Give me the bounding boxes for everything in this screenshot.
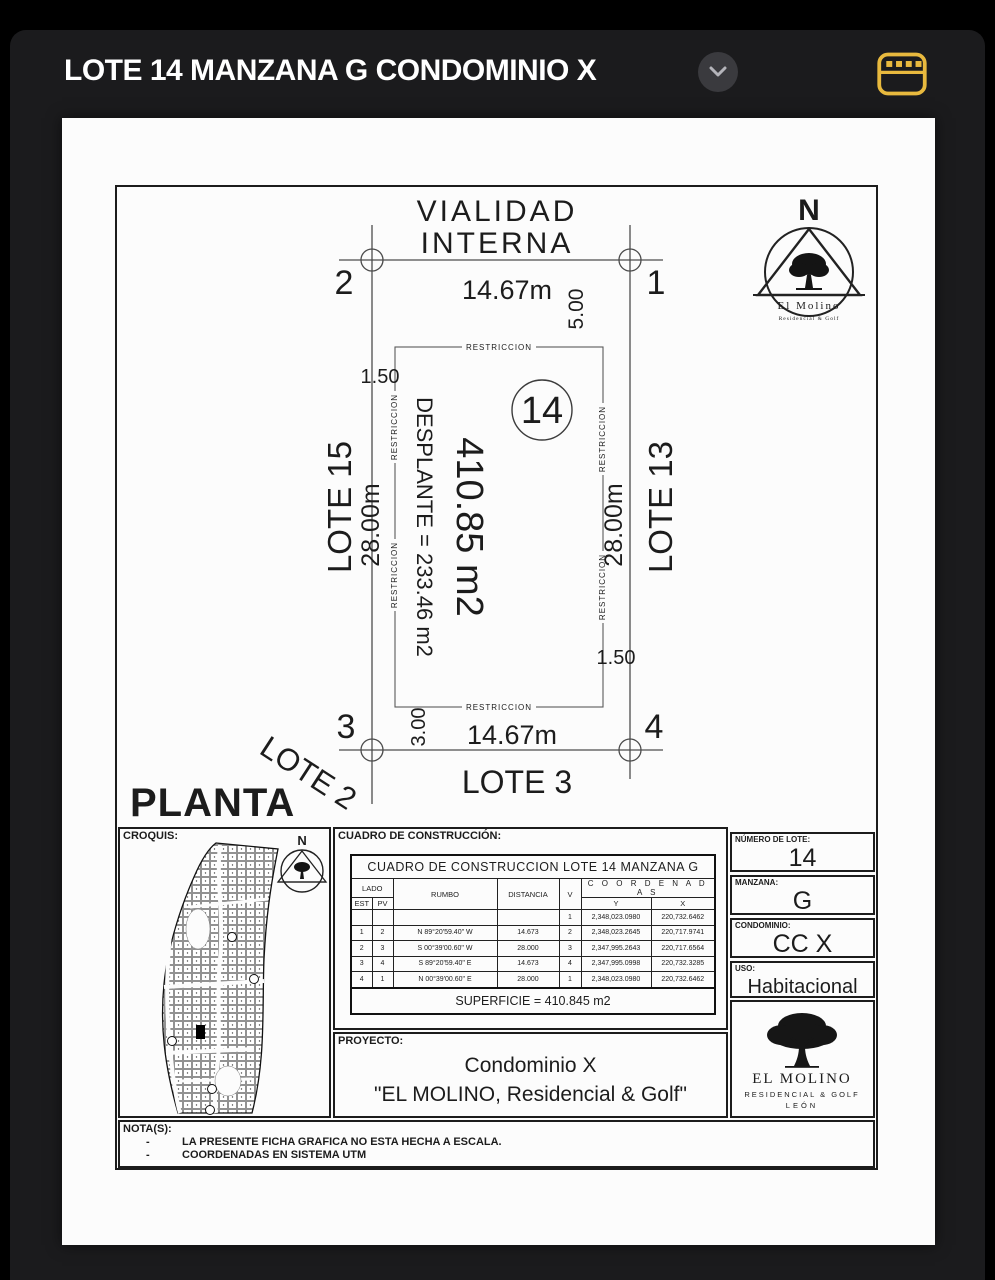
north-arrow-logo: N El Molino Residencial & Golf <box>753 194 865 322</box>
cell-x: 220,717.6564 <box>651 941 715 957</box>
table-row: 4 1 N 00°39'00.60" E 28.000 1 2,348,023.… <box>351 972 715 988</box>
cell-rumbo: S 00°39'00.60" W <box>393 941 497 957</box>
street-label-line2: INTERNA <box>421 227 574 260</box>
left-setback: 1.50 <box>361 366 400 388</box>
note-item: -COORDENADAS EN SISTEMA UTM <box>146 1149 873 1161</box>
proyecto-line2: "EL MOLINO, Residencial & Golf" <box>335 1080 726 1109</box>
cell-est: 1 <box>351 925 372 941</box>
cell-y: 2,348,023.2645 <box>581 925 651 941</box>
header-distancia: DISTANCIA <box>497 879 559 910</box>
uso-value: Habitacional <box>732 976 873 999</box>
cell-dist: 14.673 <box>497 925 559 941</box>
header-rumbo: RUMBO <box>393 879 497 910</box>
superficie-total: SUPERFICIE = 410.845 m2 <box>351 988 715 1014</box>
cuadro-label: CUADRO DE CONSTRUCCIÓN: <box>338 830 501 842</box>
notes-label: NOTA(S): <box>123 1123 172 1135</box>
cell-v: 1 <box>559 972 581 988</box>
screen: LOTE 14 MANZANA G CONDOMINIO X <box>0 0 995 1280</box>
brand-logo-box: EL MOLINO RESIDENCIAL & GOLF LEÓN <box>730 1000 875 1118</box>
croquis-map: N <box>120 829 329 1116</box>
title-dropdown-button[interactable] <box>698 52 738 92</box>
construction-table: CUADRO DE CONSTRUCCION LOTE 14 MANZANA G… <box>350 854 716 1015</box>
north-letter: N <box>798 194 820 227</box>
rear-setback: 3.00 <box>408 708 430 747</box>
cell-pv <box>372 910 393 926</box>
viewer-app-window: LOTE 14 MANZANA G CONDOMINIO X <box>10 30 985 1280</box>
neighbor-lot-left: LOTE 15 <box>321 441 358 573</box>
cell-y: 2,347,995.2643 <box>581 941 651 957</box>
header-pv: PV <box>372 898 393 910</box>
document-page: VIALIDAD INTERNA 2 1 3 4 14.67m 14.67m 2… <box>62 118 935 1245</box>
logo-sub: RESIDENCIAL & GOLF <box>744 1090 859 1099</box>
cell-dist: 28.000 <box>497 941 559 957</box>
corner-1-label: 1 <box>647 264 666 302</box>
neighbor-lot-right: LOTE 13 <box>642 441 679 573</box>
numero-lote-label: NÚMERO DE LOTE: <box>735 835 810 844</box>
cell-v: 2 <box>559 925 581 941</box>
neighbor-lot-bottom: LOTE 3 <box>462 764 572 800</box>
cell-dist: 28.000 <box>497 972 559 988</box>
croquis-box: CROQUIS: <box>118 827 331 1118</box>
cell-dist <box>497 910 559 926</box>
note-text: LA PRESENTE FICHA GRAFICA NO ESTA HECHA … <box>182 1136 502 1148</box>
table-row: 1 2 N 89°20'59.40" W 14.673 2 2,348,023.… <box>351 925 715 941</box>
info-box-uso: USO: Habitacional <box>730 961 875 998</box>
note-bullet: - <box>146 1149 182 1161</box>
header-est: EST <box>351 898 372 910</box>
left-dimension: 28.00m <box>357 483 385 566</box>
logo-name: EL MOLINO <box>752 1071 852 1087</box>
numero-lote-value: 14 <box>732 844 873 873</box>
cell-rumbo: N 00°39'00.60" E <box>393 972 497 988</box>
cell-y: 2,348,023.0980 <box>581 972 651 988</box>
header-x: X <box>651 898 715 910</box>
logo-city: LEÓN <box>786 1101 818 1110</box>
cell-pv: 1 <box>372 972 393 988</box>
el-molino-logo: EL MOLINO RESIDENCIAL & GOLF LEÓN <box>732 1002 873 1116</box>
right-setback: 1.50 <box>597 647 636 669</box>
corner-3-label: 3 <box>337 708 356 746</box>
svg-text:RESTRICCION: RESTRICCION <box>466 703 532 712</box>
note-item: -LA PRESENTE FICHA GRAFICA NO ESTA HECHA… <box>146 1136 873 1148</box>
planta-drawing: VIALIDAD INTERNA 2 1 3 4 14.67m 14.67m 2… <box>117 187 876 827</box>
cell-pv: 3 <box>372 941 393 957</box>
north-logo-name: El Molino <box>778 300 841 312</box>
front-setback: 5.00 <box>565 289 588 330</box>
svg-text:RESTRICCION: RESTRICCION <box>598 554 607 620</box>
tree-icon <box>767 1013 837 1068</box>
front-dimension: 14.67m <box>462 275 552 305</box>
lot-number: 14 <box>521 390 563 432</box>
note-bullet: - <box>146 1136 182 1148</box>
north-logo-sub: Residencial & Golf <box>779 315 840 322</box>
lot-area: 410.85 m2 <box>448 437 490 617</box>
proyecto-line1: Condominio X <box>335 1051 726 1080</box>
cell-pv: 4 <box>372 956 393 972</box>
tree-icon <box>789 253 829 290</box>
document-title: LOTE 14 MANZANA G CONDOMINIO X <box>64 54 596 88</box>
note-text: COORDENADAS EN SISTEMA UTM <box>182 1149 366 1161</box>
rear-dimension: 14.67m <box>467 720 557 750</box>
corner-4-label: 4 <box>645 708 664 746</box>
cell-pv: 2 <box>372 925 393 941</box>
chevron-down-icon <box>709 66 727 78</box>
header-lado: LADO <box>351 879 393 898</box>
notes-box: NOTA(S): -LA PRESENTE FICHA GRAFICA NO E… <box>118 1120 875 1168</box>
condominio-value: CC X <box>732 930 873 959</box>
table-row: 2 3 S 00°39'00.60" W 28.000 3 2,347,995.… <box>351 941 715 957</box>
croquis-north-letter: N <box>297 833 306 848</box>
cell-est: 2 <box>351 941 372 957</box>
cell-y: 2,348,023.0980 <box>581 910 651 926</box>
top-bar: LOTE 14 MANZANA G CONDOMINIO X <box>10 30 985 114</box>
proyecto-box: PROYECTO: Condominio X "EL MOLINO, Resid… <box>333 1032 728 1118</box>
cell-v: 1 <box>559 910 581 926</box>
header-v: V <box>559 879 581 910</box>
cell-est: 4 <box>351 972 372 988</box>
ficha-frame: VIALIDAD INTERNA 2 1 3 4 14.67m 14.67m 2… <box>115 185 878 1170</box>
table-title: CUADRO DE CONSTRUCCION LOTE 14 MANZANA G <box>351 855 715 879</box>
cell-v: 4 <box>559 956 581 972</box>
table-row: 3 4 S 89°20'59.40" E 14.673 4 2,347,995.… <box>351 956 715 972</box>
cell-x: 220,732.6462 <box>651 910 715 926</box>
cell-rumbo: S 89°20'59.40" E <box>393 956 497 972</box>
cell-est: 3 <box>351 956 372 972</box>
cell-x: 220,732.3285 <box>651 956 715 972</box>
view-title: PLANTA <box>130 781 295 825</box>
svg-text:RESTRICCION: RESTRICCION <box>466 343 532 352</box>
info-box-condominio: CONDOMINIO: CC X <box>730 918 875 958</box>
corner-2-label: 2 <box>335 264 354 302</box>
croquis-north-logo: N <box>278 833 326 892</box>
manzana-value: G <box>732 887 873 916</box>
table-row: 1 2,348,023.0980 220,732.6462 <box>351 910 715 926</box>
cell-rumbo <box>393 910 497 926</box>
filmstrip-icon <box>876 51 928 97</box>
proyecto-label: PROYECTO: <box>338 1035 403 1047</box>
svg-text:RESTRICCION: RESTRICCION <box>390 394 399 460</box>
cell-dist: 14.673 <box>497 956 559 972</box>
cuadro-box: CUADRO DE CONSTRUCCIÓN: CUADRO DE CONSTR… <box>333 827 728 1030</box>
manzana-label: MANZANA: <box>735 878 778 887</box>
condominio-label: CONDOMINIO: <box>735 921 791 930</box>
info-box-manzana: MANZANA: G <box>730 875 875 915</box>
cell-y: 2,347,995.0998 <box>581 956 651 972</box>
street-label-line1: VIALIDAD <box>417 195 578 228</box>
cell-x: 220,717.9741 <box>651 925 715 941</box>
cell-v: 3 <box>559 941 581 957</box>
markup-view-button[interactable] <box>870 48 934 100</box>
header-y: Y <box>581 898 651 910</box>
svg-text:RESTRICCION: RESTRICCION <box>598 406 607 472</box>
cell-rumbo: N 89°20'59.40" W <box>393 925 497 941</box>
desplante-area: DESPLANTE = 233.46 m2 <box>412 397 437 657</box>
cell-est <box>351 910 372 926</box>
cell-x: 220,732.6462 <box>651 972 715 988</box>
header-coordenadas: C O O R D E N A D A S <box>581 879 715 898</box>
svg-text:RESTRICCION: RESTRICCION <box>390 542 399 608</box>
croquis-subject-lot <box>196 1025 205 1039</box>
info-box-numero-lote: NÚMERO DE LOTE: 14 <box>730 832 875 872</box>
uso-label: USO: <box>735 964 755 973</box>
